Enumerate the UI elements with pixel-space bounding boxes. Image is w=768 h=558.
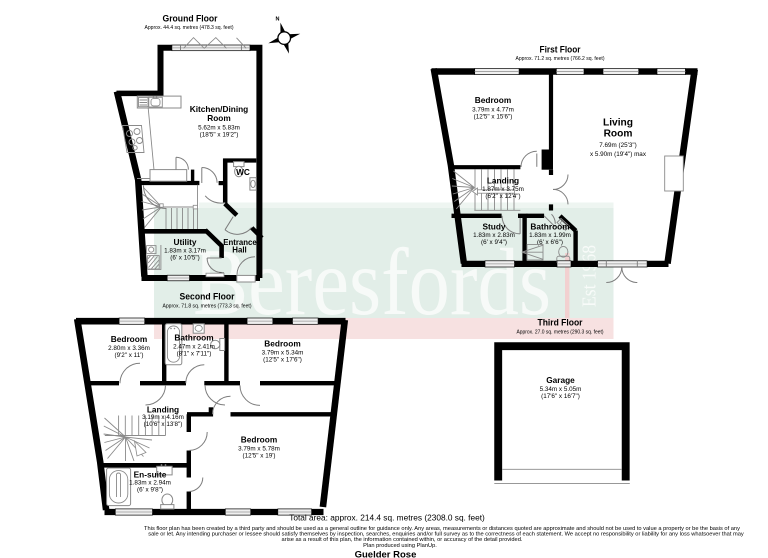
svg-text:Guelder Rose: Guelder Rose: [355, 550, 417, 558]
svg-text:(12'5" x 15'6"): (12'5" x 15'6"): [474, 114, 513, 121]
svg-text:Total area: approx. 214.4 sq.: Total area: approx. 214.4 sq. metres (23…: [289, 513, 485, 523]
svg-text:Room: Room: [604, 129, 633, 140]
svg-text:Room: Room: [207, 113, 231, 123]
svg-text:x 5.90m (19'4") max: x 5.90m (19'4") max: [590, 151, 647, 158]
svg-text:Bedroom: Bedroom: [111, 334, 147, 344]
svg-text:Bathroom: Bathroom: [530, 221, 569, 231]
svg-text:(6' x 10'5"): (6' x 10'5"): [170, 255, 200, 262]
svg-text:Utility: Utility: [173, 237, 196, 247]
svg-text:(6'2" x 12'4"): (6'2" x 12'4"): [485, 193, 520, 200]
svg-text:Study: Study: [482, 221, 505, 231]
svg-text:3.79m x 5.78m: 3.79m x 5.78m: [238, 446, 280, 453]
svg-text:Landing: Landing: [147, 405, 179, 415]
svg-text:En-suite: En-suite: [134, 470, 167, 480]
svg-text:(9'2" x 11'): (9'2" x 11'): [114, 352, 143, 359]
svg-text:5.34m x 5.05m: 5.34m x 5.05m: [540, 386, 582, 393]
svg-text:1.83m x 2.83m: 1.83m x 2.83m: [473, 232, 515, 239]
svg-text:Second Floor: Second Floor: [180, 291, 235, 302]
svg-text:Hall: Hall: [232, 245, 247, 255]
svg-text:Approx. 71.2 sq. metres (766.2: Approx. 71.2 sq. metres (766.2 sq. feet): [516, 56, 605, 62]
svg-text:Plan produced using PlanUp.: Plan produced using PlanUp.: [363, 543, 437, 549]
svg-text:Bedroom: Bedroom: [264, 339, 300, 349]
svg-text:(6' x 9'4"): (6' x 9'4"): [481, 239, 507, 246]
svg-text:7.69m (25'3"): 7.69m (25'3"): [599, 142, 636, 149]
svg-text:2.80m x 3.36m: 2.80m x 3.36m: [108, 345, 150, 352]
svg-text:Bathroom: Bathroom: [174, 333, 213, 343]
svg-text:(12'5" x 19'): (12'5" x 19'): [243, 453, 276, 460]
svg-text:Living: Living: [603, 118, 633, 129]
svg-text:(18'5" x 19'2"): (18'5" x 19'2"): [200, 132, 239, 139]
svg-text:(6' x 9'8"): (6' x 9'8"): [137, 487, 163, 494]
svg-text:Approx. 27.0 sq. metres (290.3: Approx. 27.0 sq. metres (290.3 sq. feet): [517, 330, 604, 336]
svg-text:Garage: Garage: [546, 375, 575, 385]
svg-text:Ground Floor: Ground Floor: [163, 13, 218, 24]
svg-text:(8'1" x 7'11"): (8'1" x 7'11"): [177, 351, 212, 358]
svg-text:WC: WC: [236, 167, 250, 177]
svg-text:Est 1968: Est 1968: [579, 245, 601, 307]
svg-text:2.47m x 2.41m: 2.47m x 2.41m: [173, 344, 215, 351]
svg-text:3.79m x 5.34m: 3.79m x 5.34m: [262, 350, 304, 357]
svg-text:Bedroom: Bedroom: [241, 435, 277, 445]
svg-text:(10'6" x 13'8"): (10'6" x 13'8"): [144, 421, 183, 428]
svg-text:1.87m x 3.75m: 1.87m x 3.75m: [482, 186, 524, 193]
svg-text:(12'5" x 17'6"): (12'5" x 17'6"): [263, 357, 302, 364]
svg-text:Landing: Landing: [487, 176, 519, 186]
svg-text:1.83m x 2.94m: 1.83m x 2.94m: [129, 480, 171, 487]
svg-text:N: N: [276, 17, 280, 23]
svg-text:(17'6" x 16'7"): (17'6" x 16'7"): [541, 393, 580, 400]
svg-text:Approx. 44.4 sq. metres (478.3: Approx. 44.4 sq. metres (478.3 sq. feet): [145, 25, 234, 31]
svg-text:1.83m x 3.17m: 1.83m x 3.17m: [164, 248, 206, 255]
svg-text:Third Floor: Third Floor: [538, 317, 583, 328]
svg-text:First Floor: First Floor: [540, 44, 581, 55]
svg-text:Bedroom: Bedroom: [475, 95, 511, 105]
svg-text:5.62m x 5.83m: 5.62m x 5.83m: [198, 125, 240, 132]
svg-text:Approx. 71.8 sq. metres (773.3: Approx. 71.8 sq. metres (773.3 sq. feet): [163, 304, 252, 310]
svg-text:1.83m x 1.99m: 1.83m x 1.99m: [529, 232, 571, 239]
svg-text:3.79m x 4.77m: 3.79m x 4.77m: [472, 107, 514, 114]
